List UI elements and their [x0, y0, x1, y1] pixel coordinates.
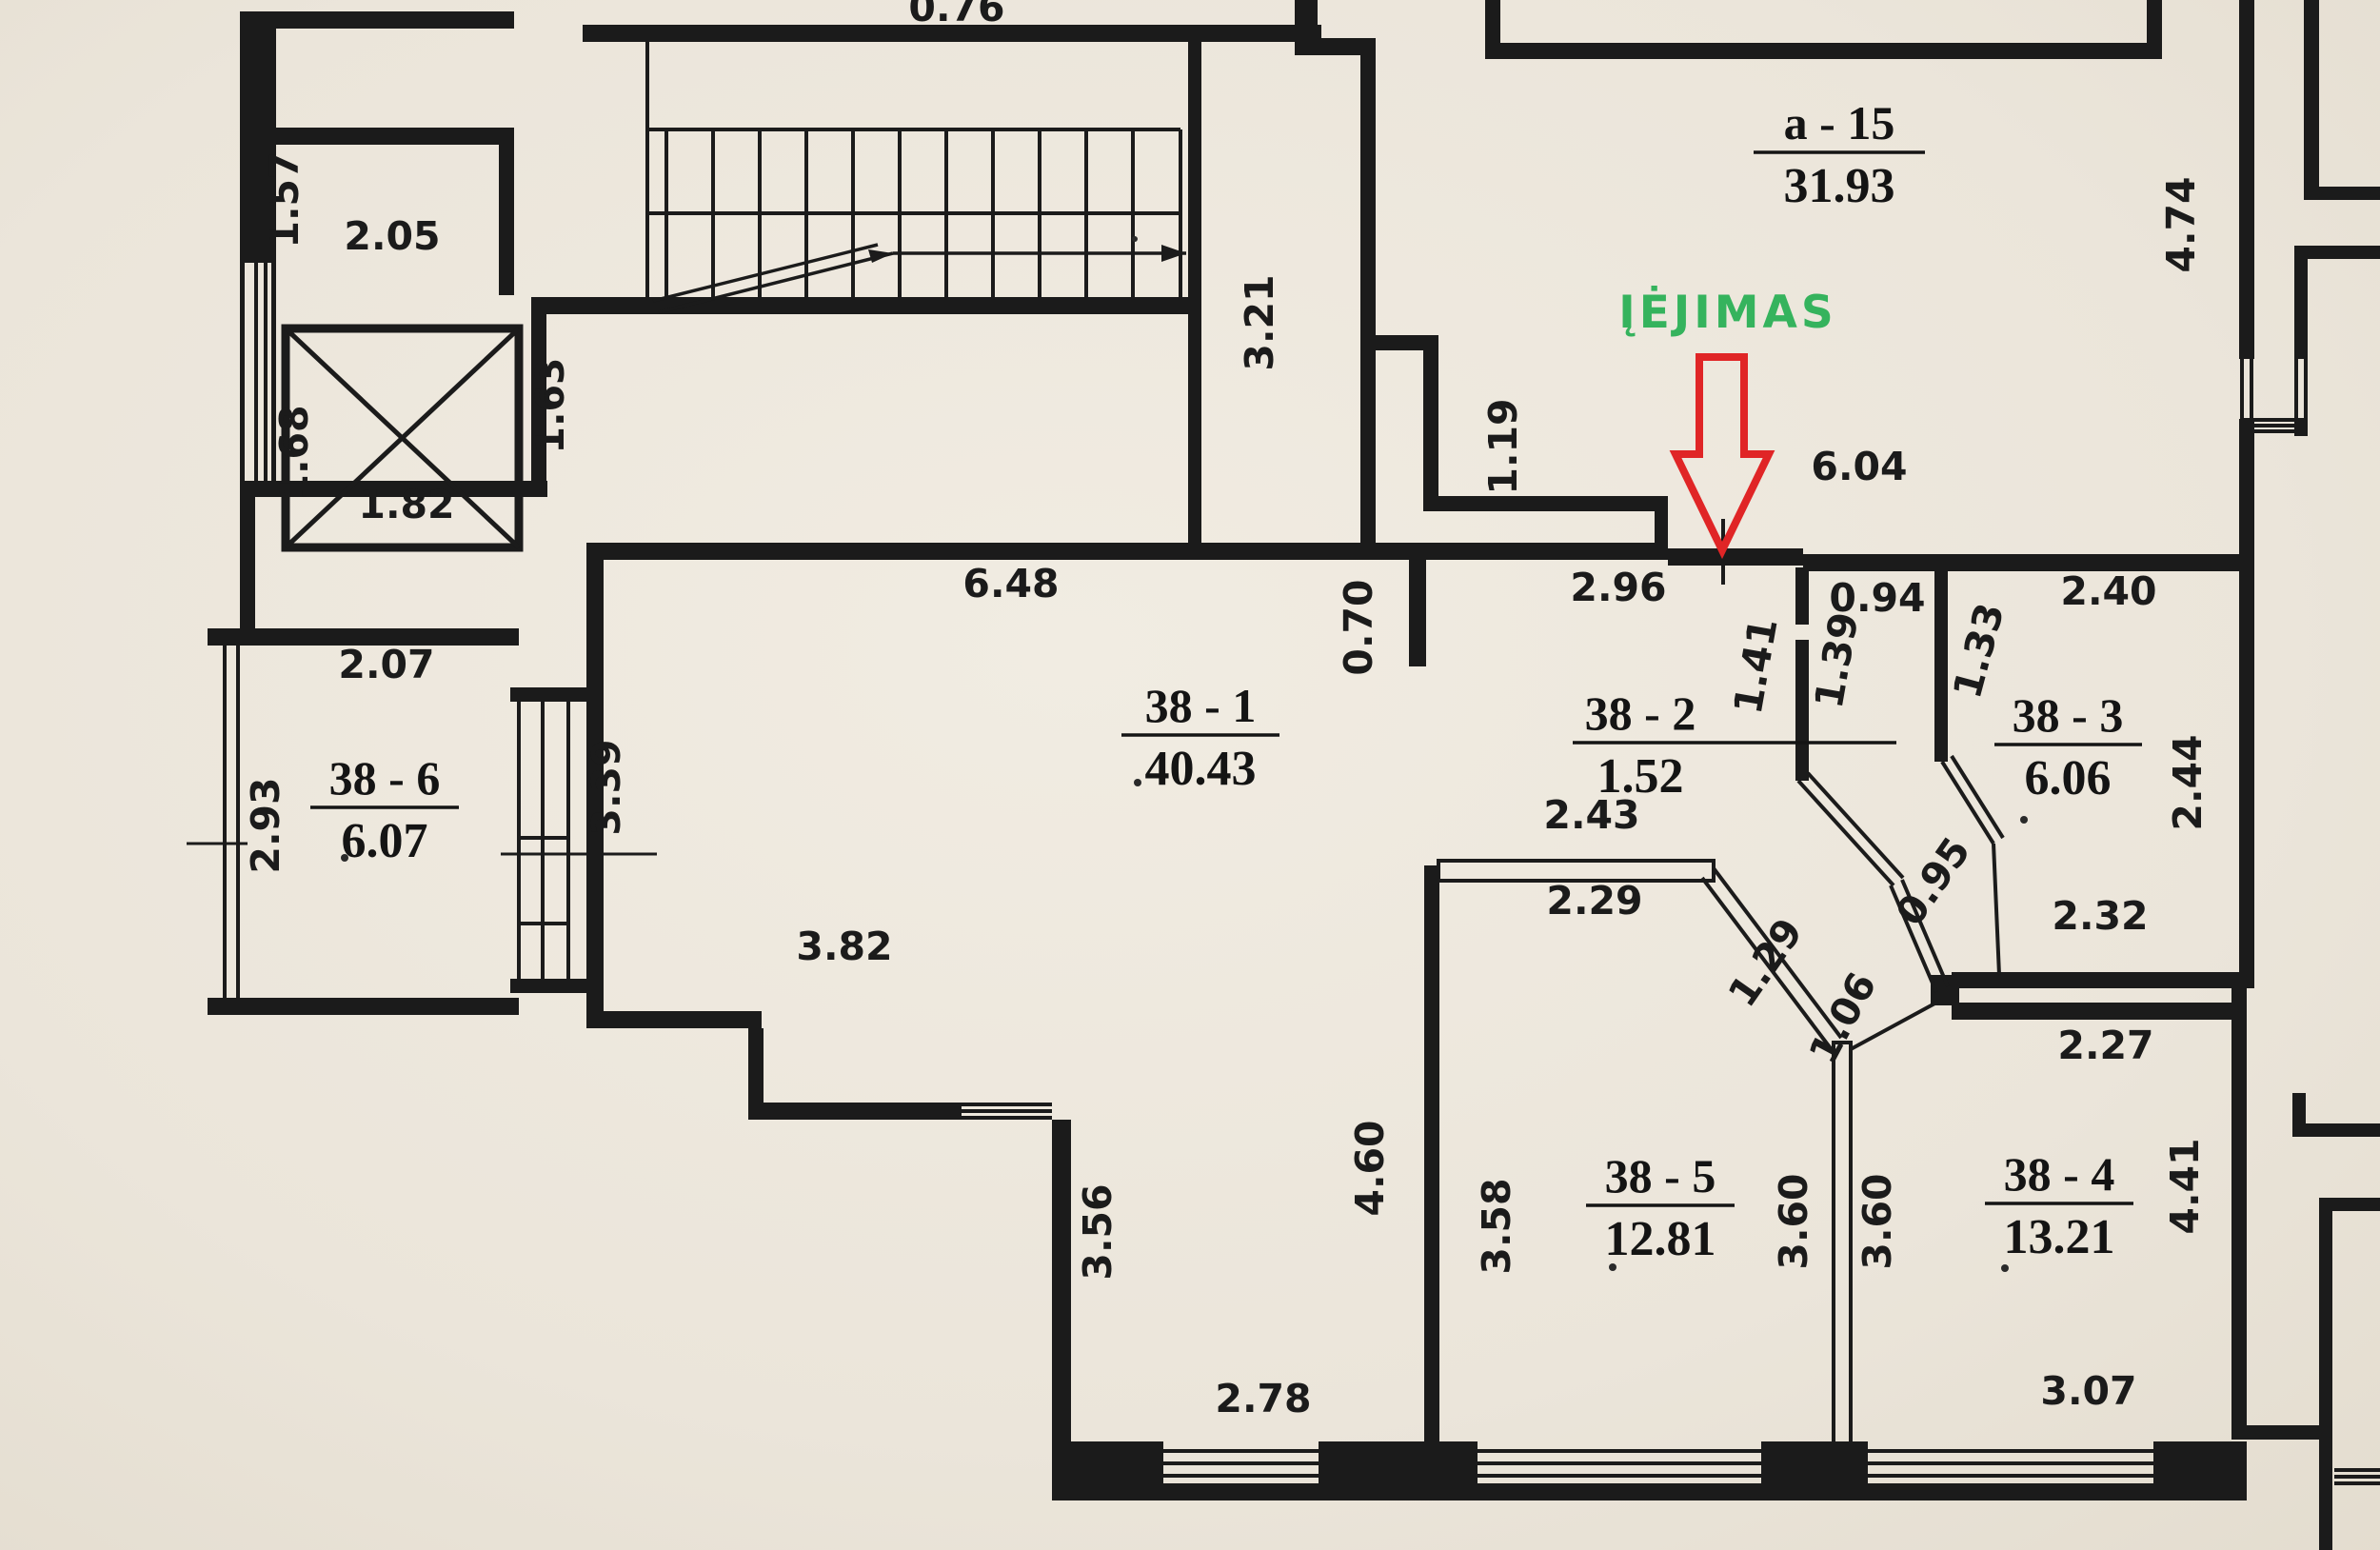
wall	[2319, 1198, 2332, 1550]
dimension-label: 2.32	[2052, 893, 2148, 939]
dimension-label: 1.82	[358, 482, 454, 527]
dimension-label: 3.39	[584, 739, 629, 835]
wall	[2231, 972, 2247, 1425]
room-area: 12.81	[1605, 1212, 1716, 1266]
wall	[1952, 972, 2247, 988]
dimension-label: 6.04	[1811, 444, 1907, 489]
dimension-label: 2.78	[1215, 1376, 1311, 1421]
room-number: 38 - 3	[2013, 688, 2124, 742]
wall	[1485, 43, 2162, 59]
dimension-label: 2.93	[243, 777, 288, 873]
wall	[2231, 1425, 2319, 1440]
wall	[499, 128, 514, 295]
wall	[1360, 38, 1376, 545]
floor-plan-page: ĮĖJIMAS 1.572.051.631.681.823.211.194.74…	[0, 0, 2380, 1550]
dimension-label: 2.29	[1546, 878, 1642, 924]
dimension-label: 1.63	[527, 357, 573, 453]
dimension-label: 3.82	[796, 924, 892, 969]
dimension-label: 1.68	[271, 405, 317, 501]
room-number: 38 - 1	[1145, 679, 1257, 732]
window	[2241, 420, 2308, 431]
wall	[240, 497, 255, 646]
wall	[2292, 1123, 2380, 1137]
dimension-label: 2.27	[2057, 1023, 2153, 1068]
wall	[1424, 865, 1439, 1466]
room-area: 13.21	[2004, 1210, 2115, 1264]
dimension-label: 2.05	[344, 213, 440, 259]
wall	[764, 1103, 962, 1120]
wall	[1668, 548, 1803, 566]
wall	[1803, 554, 2247, 571]
wall	[2304, 187, 2380, 200]
wall	[1052, 1120, 1071, 1491]
room-area: 1.52	[1597, 749, 1684, 804]
dimension-label: 3.60	[1854, 1173, 1900, 1269]
dimension-label: 4.41	[2162, 1138, 2208, 1234]
wall	[1423, 335, 1438, 511]
dimension-label: 2.40	[2060, 568, 2156, 614]
room-area: 40.43	[1145, 742, 1257, 796]
wall	[1934, 571, 1948, 762]
ink-dot	[2020, 816, 2028, 824]
wall	[1409, 560, 1426, 666]
dimension-label: 6.48	[962, 561, 1059, 606]
dimension-label: 0.70	[1336, 579, 1381, 675]
room-number: 38 - 5	[1605, 1149, 1716, 1202]
wall	[1052, 1483, 2247, 1500]
room-number: 38 - 2	[1585, 686, 1696, 740]
dimension-label: 3.21	[1237, 274, 1282, 370]
wall	[748, 1028, 764, 1120]
ink-dot	[1132, 236, 1138, 242]
dimension-label: 1.57	[262, 151, 307, 248]
dimension-label: 3.58	[1474, 1178, 1519, 1274]
room-area: 6.06	[2025, 751, 2112, 805]
wall-pier	[1761, 1441, 1868, 1500]
floor-plan: ĮĖJIMAS 1.572.051.631.681.823.211.194.74…	[0, 0, 2380, 1550]
dimension-label: 3.60	[1771, 1173, 1816, 1269]
dimension-label: 4.60	[1347, 1120, 1393, 1216]
wall	[2239, 0, 2254, 359]
dimension-label: 3.07	[2040, 1368, 2136, 1414]
room-number: a - 15	[1784, 96, 1895, 149]
wall	[1188, 42, 1201, 545]
dimension-label: 4.74	[2158, 176, 2204, 272]
room-area: 6.07	[342, 814, 428, 868]
wall	[586, 543, 1661, 560]
ink-dot	[1134, 779, 1141, 786]
wall	[208, 998, 519, 1015]
wall	[2294, 246, 2308, 359]
wall-pier	[2153, 1441, 2247, 1500]
wall-pier	[1052, 1441, 1163, 1500]
wall	[2147, 0, 2162, 59]
room-area: 31.93	[1784, 159, 1895, 213]
wall	[274, 128, 514, 145]
wall	[1795, 567, 1809, 625]
dimension-label: 2.96	[1570, 565, 1666, 610]
entrance-label: ĮĖJIMAS	[1618, 287, 1837, 339]
wall	[2304, 0, 2319, 200]
dimension-label: 2.44	[2165, 734, 2211, 830]
wall	[586, 1011, 762, 1028]
room-number: 38 - 4	[2004, 1147, 2115, 1201]
dimension-label: 2.07	[338, 642, 434, 687]
dimension-label: 3.56	[1075, 1183, 1121, 1280]
wall	[2239, 419, 2254, 988]
wall-pier	[1319, 1441, 1478, 1500]
wall	[531, 297, 1201, 314]
wall	[1795, 640, 1809, 781]
dimension-label: 0.76	[908, 0, 1004, 30]
dimension-label: 1.19	[1480, 398, 1526, 494]
room-number: 38 - 6	[329, 751, 441, 805]
wall	[1952, 1003, 2231, 1020]
wall	[1423, 496, 1666, 511]
ink-dot	[2001, 1264, 2009, 1272]
wall	[240, 11, 514, 29]
